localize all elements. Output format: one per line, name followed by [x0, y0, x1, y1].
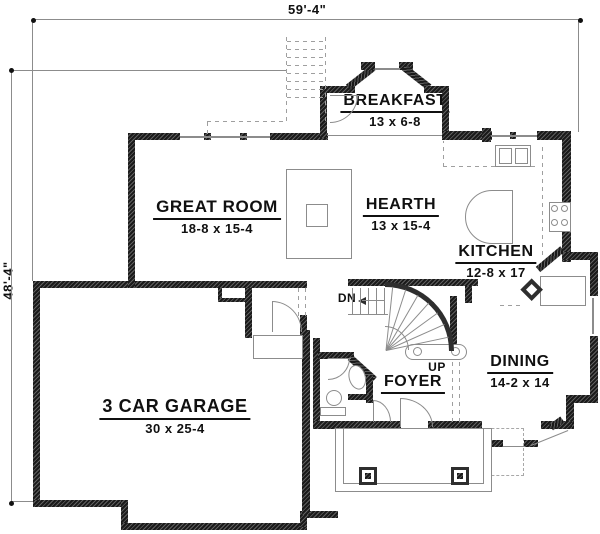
dining-label: DINING 14-2 x 14	[487, 353, 553, 390]
breakfast-size: 13 x 6-8	[340, 114, 449, 129]
deck-stair-tread	[287, 73, 325, 74]
deck-stair-tread	[287, 65, 325, 66]
deck-stair-tread	[287, 97, 325, 98]
floor-line	[578, 20, 579, 132]
porch-column-core	[365, 473, 371, 479]
wall-segment	[128, 133, 180, 140]
dashed-line	[542, 145, 543, 255]
dimension-dot	[578, 18, 583, 23]
pantry-alcove	[540, 276, 586, 306]
porch-column-core	[457, 473, 463, 479]
floor-line	[531, 430, 568, 446]
deck-stair-tread	[287, 49, 325, 50]
floor-line	[11, 501, 33, 502]
garage-label: 3 CAR GARAGE 30 x 25-4	[99, 396, 250, 436]
fireplace-middle	[306, 204, 328, 227]
floor-line	[491, 135, 537, 137]
toilet-tank	[320, 407, 346, 416]
foyer-name: FOYER	[381, 373, 445, 394]
stairs-down-label: DN	[338, 291, 356, 305]
floor-line	[375, 68, 400, 70]
dashed-line	[305, 288, 306, 316]
kitchen-size: 12-8 x 17	[455, 265, 536, 280]
wall-segment	[442, 86, 449, 136]
overall-width-dimension: 59'-4"	[288, 2, 326, 17]
hearth-size: 13 x 15-4	[363, 218, 439, 233]
wall-segment	[33, 281, 307, 288]
wall-segment	[536, 246, 565, 272]
floor-line	[376, 288, 377, 315]
dashed-line	[459, 362, 460, 422]
kitchen-island	[465, 190, 513, 244]
dashed-line	[286, 33, 287, 121]
floor-line	[180, 136, 270, 138]
overall-height-dimension: 48'-4"	[1, 256, 16, 306]
dashed-line	[325, 33, 326, 121]
range-burner	[561, 219, 568, 226]
garage-name: 3 CAR GARAGE	[99, 396, 250, 420]
floor-line	[352, 288, 353, 315]
dimension-dot	[9, 68, 14, 73]
window-glass-line	[592, 298, 594, 334]
range-burner	[551, 219, 558, 226]
dashed-line	[443, 141, 444, 167]
great-room-size: 18-8 x 15-4	[153, 221, 281, 236]
deck-stair-tread	[287, 89, 325, 90]
window-gap	[588, 296, 600, 336]
floor-line	[32, 20, 33, 281]
great-room-name: GREAT ROOM	[153, 197, 281, 220]
deck-stair-tread	[287, 57, 325, 58]
great-room-label: GREAT ROOM 18-8 x 15-4	[153, 197, 281, 236]
floor-line	[327, 135, 442, 136]
garage-size: 30 x 25-4	[99, 421, 250, 436]
toilet-bowl	[326, 390, 342, 406]
floor-line	[11, 70, 12, 502]
dashed-line	[500, 305, 520, 306]
wall-segment	[562, 131, 571, 262]
foyer-label: FOYER	[381, 373, 445, 394]
kitchen-sink-bowl	[515, 148, 528, 164]
deck-stair-tread	[287, 41, 325, 42]
floor-line	[33, 19, 579, 20]
floor-line	[368, 288, 369, 315]
kitchen-sink-bowl	[499, 148, 512, 164]
fireplace-inner	[308, 232, 326, 248]
floor-line	[11, 70, 287, 71]
dashed-line	[207, 121, 208, 134]
wall-segment	[121, 523, 307, 530]
fireplace-inner	[308, 182, 326, 199]
door-swing-arc	[373, 400, 391, 422]
wall-segment	[465, 286, 472, 303]
wall-segment	[33, 500, 128, 507]
floor-line	[362, 300, 384, 301]
dimension-dot	[31, 18, 36, 23]
floor-plan-canvas: 59'-4" 48'-4" BREAKFAST 13 x 6-8 GREAT R…	[0, 0, 600, 534]
wall-segment	[128, 133, 135, 288]
garage-stoop	[253, 335, 303, 359]
door-swing-arc	[328, 358, 350, 380]
wall-segment	[33, 281, 40, 507]
door-swing-arc	[400, 398, 433, 427]
wall-segment	[302, 330, 310, 515]
dimension-dot	[9, 501, 14, 506]
dashed-line	[452, 362, 453, 422]
stairs-up-label: UP	[428, 360, 446, 374]
dining-name: DINING	[487, 353, 553, 374]
dashed-line	[298, 288, 299, 316]
kitchen-name: KITCHEN	[455, 243, 536, 264]
wall-segment	[348, 394, 373, 400]
wall-segment	[361, 62, 375, 70]
wall-segment	[348, 279, 478, 286]
hearth-label: HEARTH 13 x 15-4	[363, 196, 439, 233]
floor-line	[360, 288, 361, 315]
range-burner	[551, 205, 558, 212]
kitchen-label: KITCHEN 12-8 x 17	[455, 243, 536, 280]
wall-segment	[245, 288, 252, 338]
deck-stair-tread	[287, 81, 325, 82]
dining-size: 14-2 x 14	[487, 375, 553, 390]
dashed-line	[207, 121, 287, 122]
hearth-name: HEARTH	[363, 196, 439, 217]
range-burner	[561, 205, 568, 212]
wall-segment	[482, 128, 491, 142]
